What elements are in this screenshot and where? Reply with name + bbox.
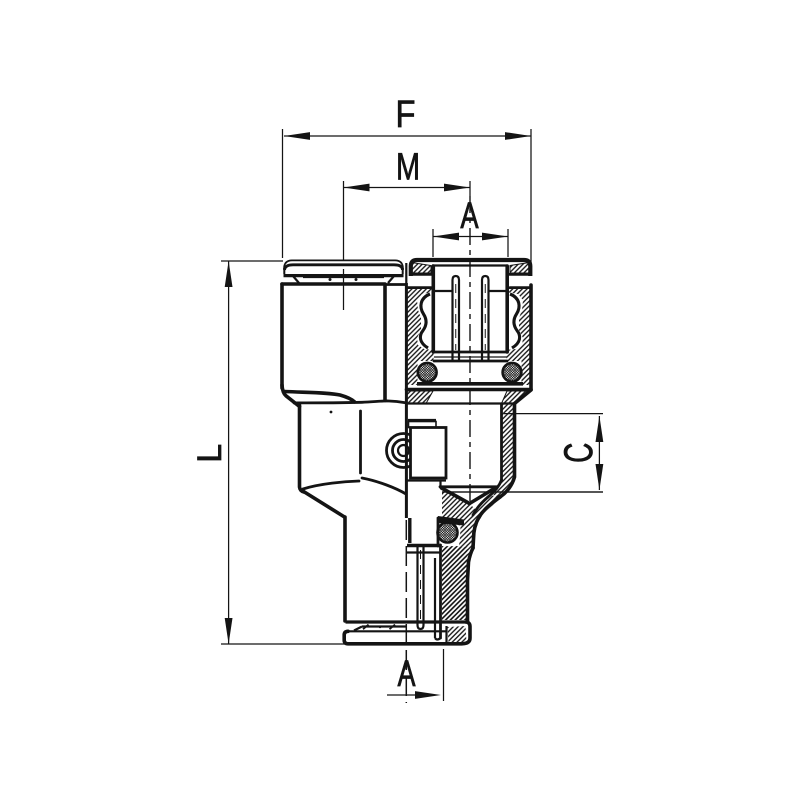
svg-text:M: M <box>396 146 420 189</box>
svg-text:L: L <box>191 444 229 463</box>
svg-text:F: F <box>396 93 416 136</box>
svg-text:C: C <box>557 443 601 463</box>
